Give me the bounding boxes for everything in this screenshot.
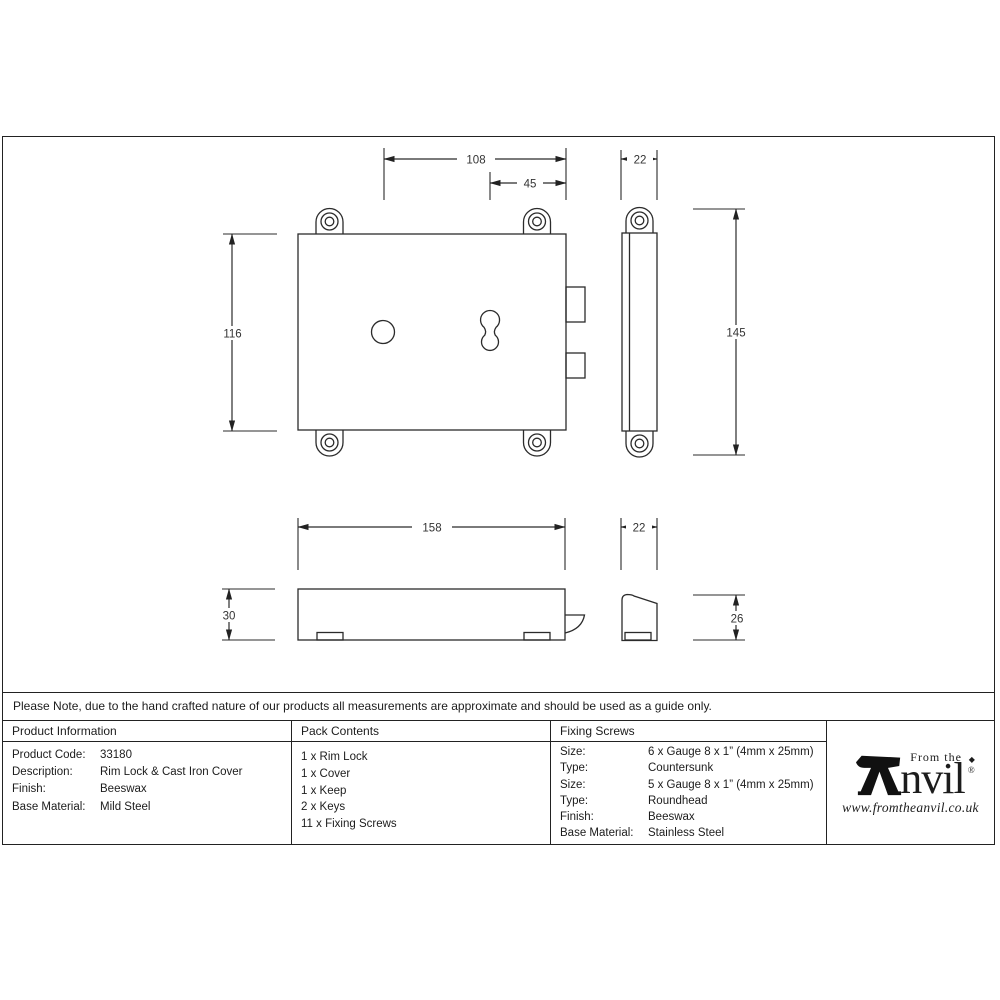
row-label: Size: (560, 744, 648, 760)
product-information-column: Product Information Product Code: 33180 … (3, 721, 291, 844)
table-row: Product Code: 33180 (12, 747, 291, 764)
from-the-anvil-logo: From the ◆ nvil ® www.fromtheanvil.co.uk (842, 750, 979, 816)
row-label: Base Material: (560, 825, 648, 841)
row-value: Roundhead (648, 793, 826, 809)
row-value: 33180 (100, 747, 291, 764)
table-row: Finish: Beeswax (12, 781, 291, 798)
row-label: Type: (560, 793, 648, 809)
note-text: Please Note, due to the hand crafted nat… (13, 699, 712, 713)
row-label: Finish: (12, 781, 100, 798)
table-row: Size: 6 x Gauge 8 x 1” (4mm x 25mm) (560, 744, 826, 760)
table-row: Base Material: Stainless Steel (560, 825, 826, 841)
brand-logo-cell: From the ◆ nvil ® www.fromtheanvil.co.uk (826, 721, 994, 844)
table-row: Type: Roundhead (560, 793, 826, 809)
list-item: 1 x Cover (301, 766, 550, 783)
row-label: Description: (12, 764, 100, 781)
registered-trademark: ® (968, 754, 975, 786)
anvil-icon (856, 752, 903, 797)
row-label: Type: (560, 760, 648, 776)
row-value: Mild Steel (100, 799, 291, 816)
list-item: 1 x Rim Lock (301, 749, 550, 766)
list-item: 11 x Fixing Screws (301, 816, 550, 833)
row-value: 5 x Gauge 8 x 1” (4mm x 25mm) (648, 777, 826, 793)
row-value: Countersunk (648, 760, 826, 776)
row-value: 6 x Gauge 8 x 1” (4mm x 25mm) (648, 744, 826, 760)
row-label: Finish: (560, 809, 648, 825)
row-label: Size: (560, 777, 648, 793)
logo-wordmark-text: nvil (900, 754, 964, 803)
row-value: Beeswax (648, 809, 826, 825)
row-value: Rim Lock & Cast Iron Cover (100, 764, 291, 781)
measurement-note: Please Note, due to the hand crafted nat… (2, 692, 995, 722)
spec-table: Product Information Product Code: 33180 … (2, 720, 995, 845)
row-value: Beeswax (100, 781, 291, 798)
table-row: Finish: Beeswax (560, 809, 826, 825)
fixing-screws-header: Fixing Screws (551, 721, 826, 742)
row-label: Product Code: (12, 747, 100, 764)
table-row: Description: Rim Lock & Cast Iron Cover (12, 764, 291, 781)
pack-contents-column: Pack Contents 1 x Rim Lock 1 x Cover 1 x… (291, 721, 550, 844)
fixing-screws-column: Fixing Screws Size: 6 x Gauge 8 x 1” (4m… (550, 721, 826, 844)
row-value: Stainless Steel (648, 825, 826, 841)
row-label: Base Material: (12, 799, 100, 816)
pack-contents-header: Pack Contents (292, 721, 550, 742)
table-row: Size: 5 x Gauge 8 x 1” (4mm x 25mm) (560, 777, 826, 793)
logo-wordmark: nvil ® (900, 763, 964, 795)
table-row: Type: Countersunk (560, 760, 826, 776)
list-item: 1 x Keep (301, 783, 550, 800)
table-row: Base Material: Mild Steel (12, 799, 291, 816)
product-information-header: Product Information (3, 721, 291, 742)
spec-sheet-page: 108 45 22 116 145 158 22 30 26 Please No… (0, 0, 1000, 1000)
list-item: 2 x Keys (301, 799, 550, 816)
